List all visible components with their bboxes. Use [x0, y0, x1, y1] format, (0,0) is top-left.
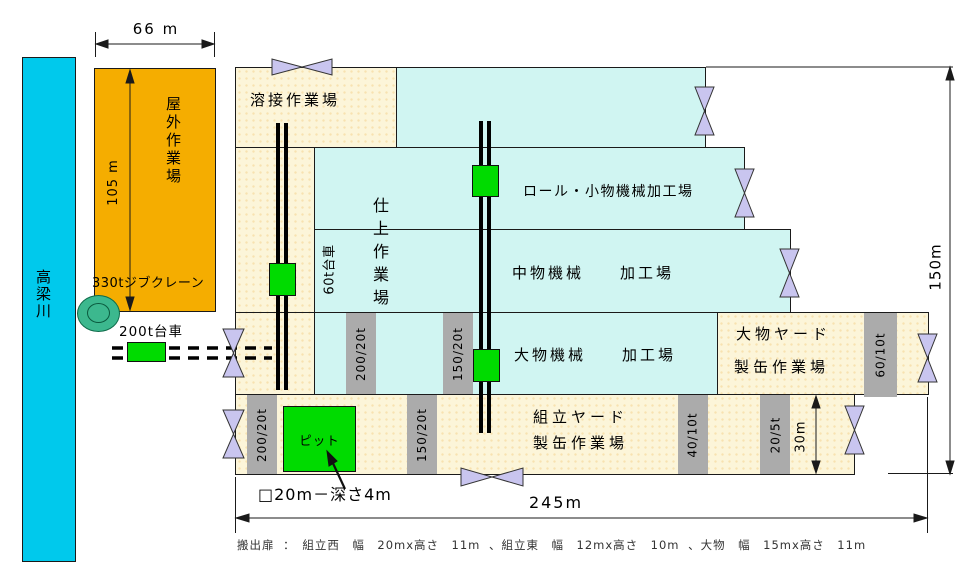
- door-icon: [222, 328, 245, 382]
- door-icon: [460, 467, 524, 491]
- cart-60t-label: 60t台車: [314, 238, 342, 300]
- door-icon: [734, 168, 755, 222]
- crane-bar: 200/20t: [247, 395, 277, 474]
- medium-machine-label: 中物機械 加工場: [512, 265, 674, 282]
- door-icon: [694, 86, 715, 140]
- width-dimension-label: 66 m: [96, 21, 216, 38]
- cart-icon: [269, 263, 296, 296]
- door-icon: [779, 248, 800, 302]
- pit-note-label: □20m－深さ4m: [258, 486, 392, 504]
- pit-label: ピット: [299, 430, 340, 449]
- door-icon: [222, 409, 245, 463]
- jib-crane-inner-ring: [87, 303, 110, 323]
- pit: ピット: [283, 406, 356, 472]
- height-dimension-label: 105 m: [96, 145, 130, 219]
- door-icon: [917, 333, 938, 387]
- assembly-height-label: 30m: [786, 400, 816, 472]
- crane-bar: 200/20t: [346, 313, 376, 394]
- river-label: 高梁川: [35, 269, 50, 320]
- crane-bar-label: 150/20t: [415, 408, 429, 462]
- assembly-yard-label-line1: 組立ヤード: [533, 409, 628, 426]
- total-height-label: 150m: [918, 230, 954, 304]
- cart-200t-label: 200t台車: [119, 325, 183, 341]
- row1-machine-area: [396, 67, 706, 148]
- crane-bar: 60/10t: [864, 313, 897, 397]
- cart-200t-icon: [127, 342, 166, 362]
- crane-bar-label: 150/20t: [451, 327, 465, 381]
- crane-bar-label: 60/10t: [874, 332, 888, 377]
- large-machine-label: 大物機械 加工場: [514, 347, 676, 364]
- crane-bar-label: 40/10t: [686, 412, 700, 457]
- crane-bar-label: 20/5t: [768, 416, 782, 453]
- outdoor-yard-label: 屋外作業場: [165, 96, 180, 186]
- large-yard-label-line1: 大物ヤード: [736, 326, 831, 343]
- finishing-area-label: 仕上作業場: [371, 197, 387, 312]
- column-divider-line: [235, 312, 315, 313]
- factory-layout-diagram: 高梁川 屋外作業場 66 m 105 m 330tジブクレーン 200t台車 2…: [0, 0, 980, 582]
- crane-bar-label: 200/20t: [255, 408, 269, 462]
- crane-bar: 40/10t: [678, 395, 708, 474]
- rail-track: [284, 123, 288, 390]
- door-icon: [844, 405, 865, 459]
- roll-small-machine-label: ロール・小物機械加工場: [523, 184, 694, 200]
- door-icon: [271, 58, 333, 80]
- welding-area-label: 溶接作業場: [250, 92, 340, 109]
- assembly-yard-label-line2: 製缶作業場: [533, 435, 628, 452]
- rail-track: [276, 123, 280, 390]
- large-yard-label-line2: 製缶作業場: [734, 359, 829, 376]
- crane-bar: 150/20t: [407, 395, 437, 474]
- export-doors-caption: 搬出扉 ： 組立西 幅 20mx高さ 11m 、組立東 幅 12mx高さ 10m…: [237, 539, 866, 552]
- crane-bar: 150/20t: [443, 313, 473, 394]
- cart-icon: [473, 349, 500, 382]
- cart-icon: [472, 165, 499, 197]
- jib-crane-label: 330tジブクレーン: [92, 277, 204, 292]
- crane-bar-label: 200/20t: [354, 327, 368, 381]
